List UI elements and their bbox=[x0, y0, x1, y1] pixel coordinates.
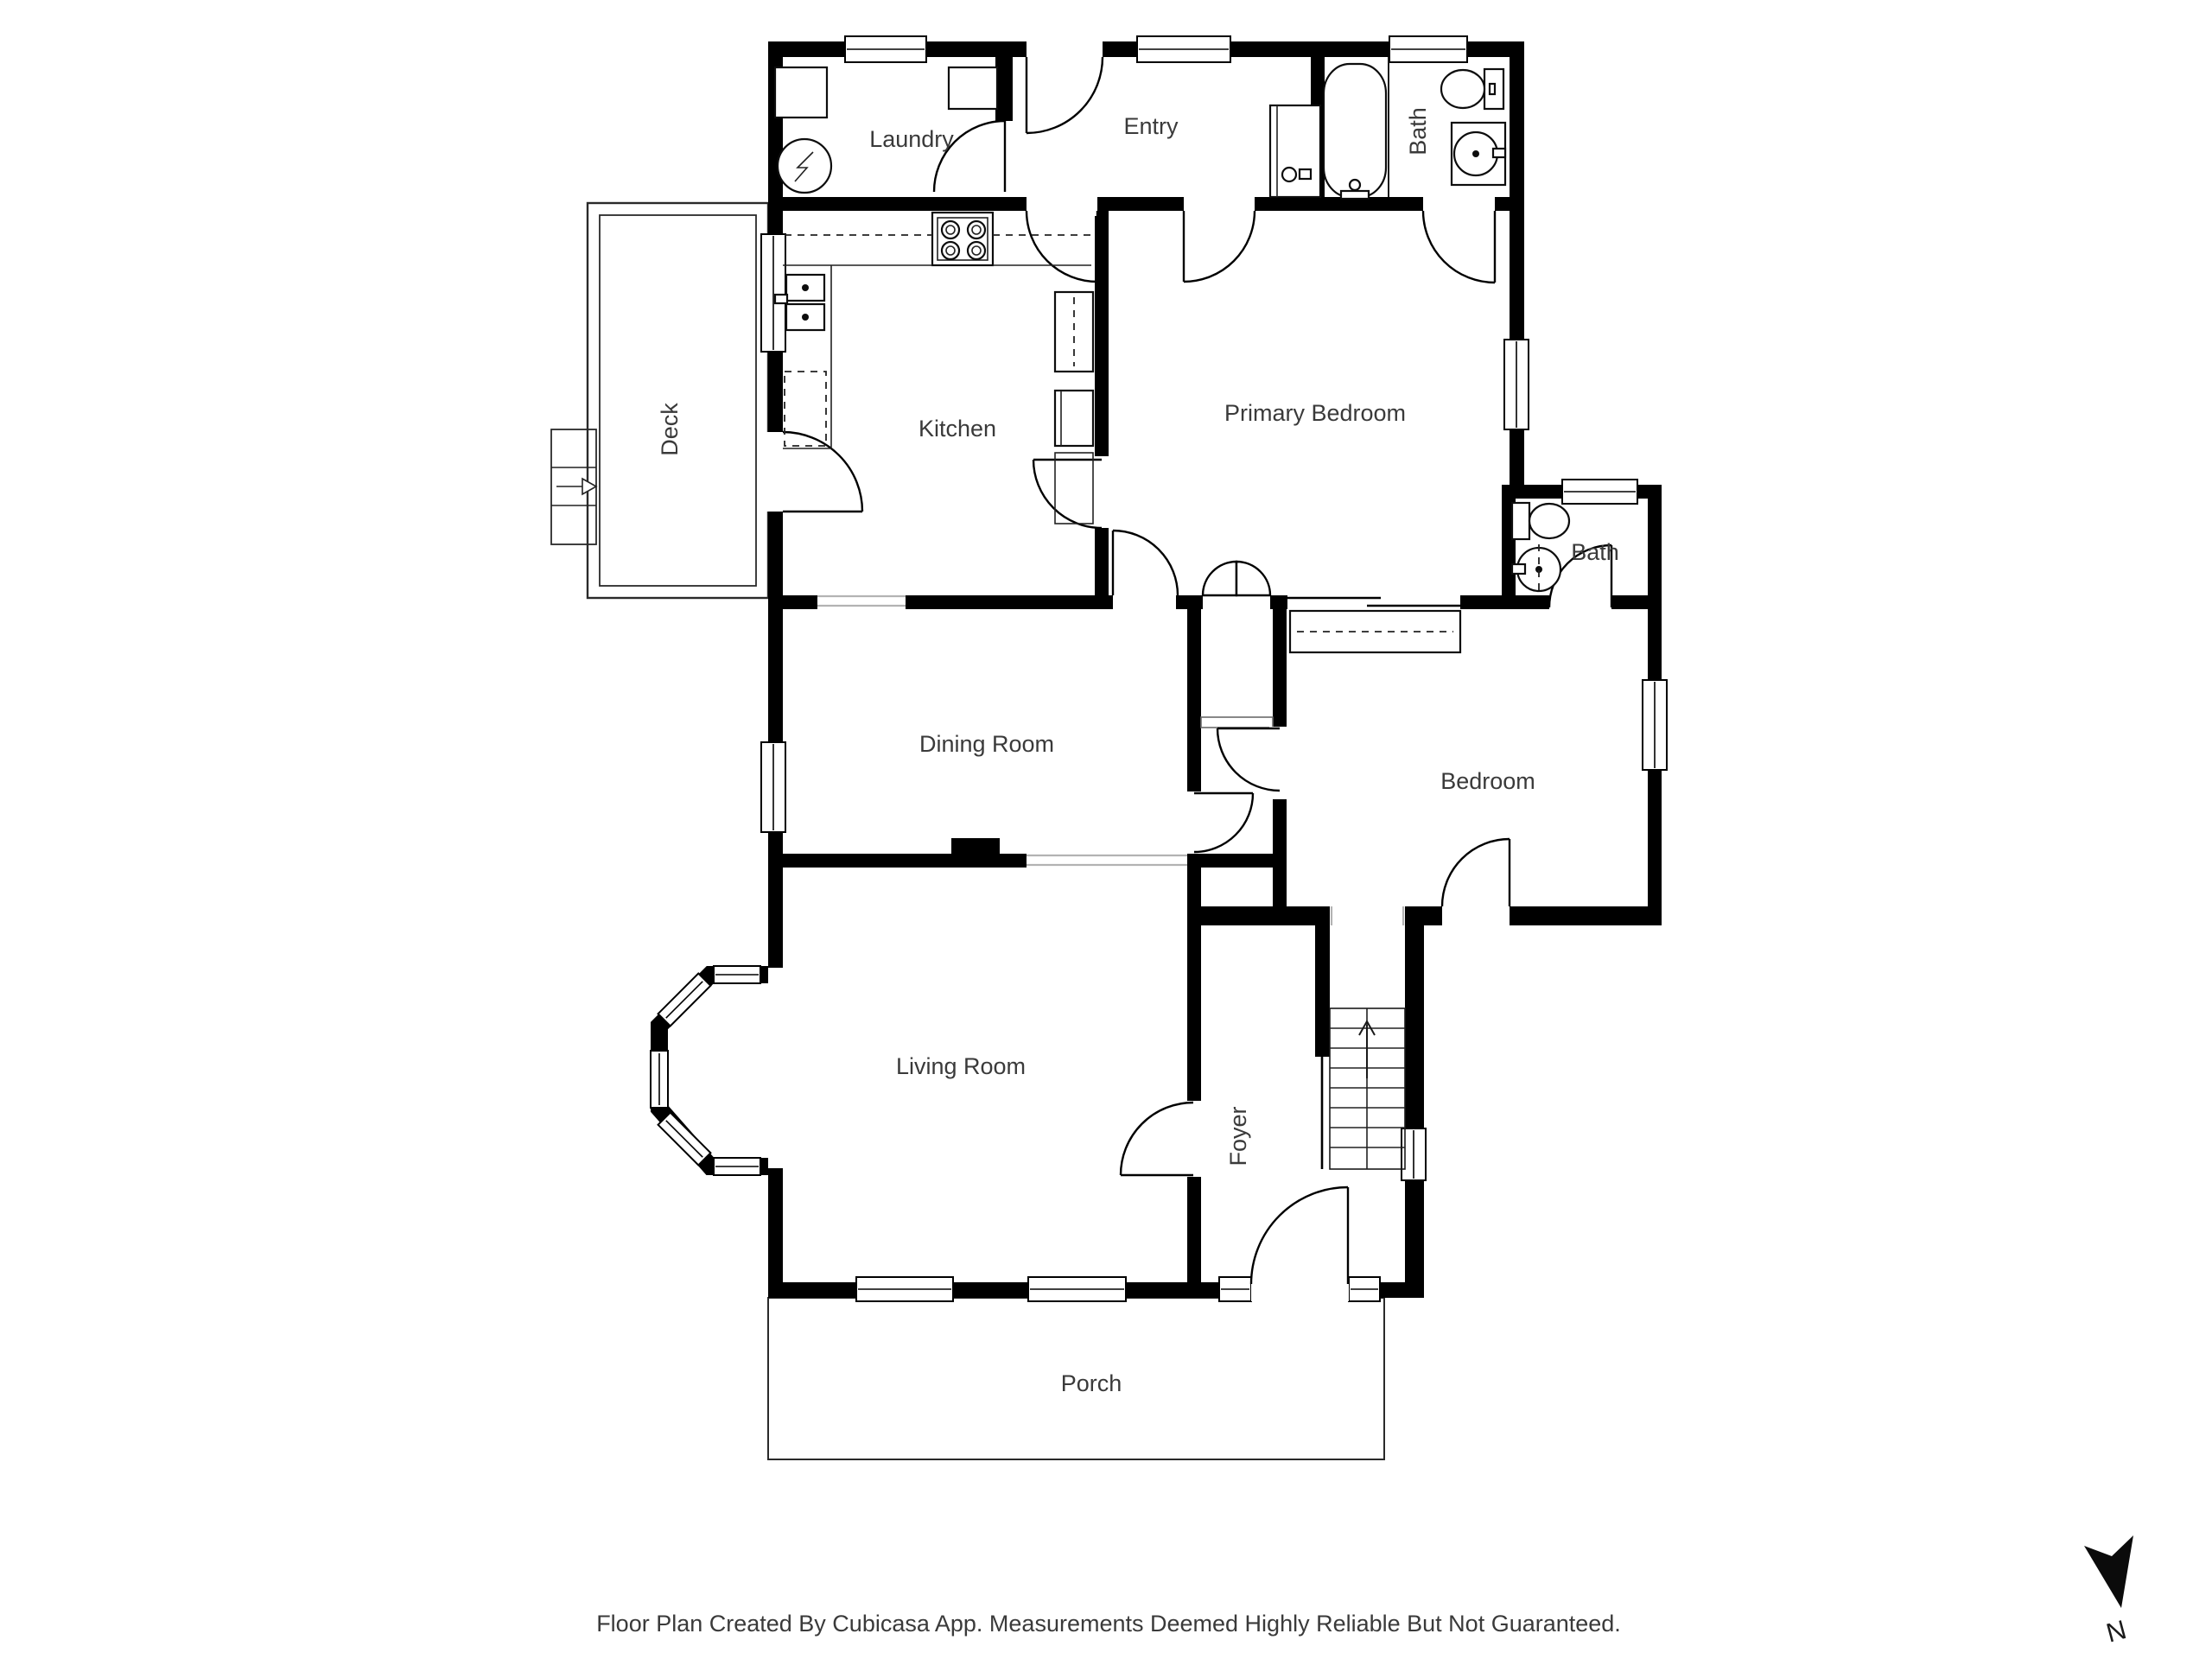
room-label-bath-mid: Bath bbox=[1571, 539, 1619, 565]
room-label-bath-top: Bath bbox=[1405, 107, 1431, 156]
bathtub-icon bbox=[1324, 64, 1386, 199]
window bbox=[658, 974, 711, 1027]
chimney bbox=[951, 838, 1000, 854]
room-label-dining: Dining Room bbox=[919, 731, 1054, 757]
window bbox=[1389, 36, 1467, 62]
window bbox=[1219, 1277, 1251, 1301]
deck-steps-icon bbox=[551, 429, 596, 544]
room-label-entry: Entry bbox=[1123, 113, 1179, 139]
door bbox=[1251, 1187, 1349, 1301]
room-label-bedroom: Bedroom bbox=[1440, 768, 1535, 794]
staircase bbox=[1322, 1008, 1405, 1169]
door bbox=[1033, 456, 1112, 528]
washer-icon bbox=[778, 139, 831, 193]
window bbox=[714, 966, 760, 983]
window bbox=[1643, 680, 1667, 770]
floor-plan-page: Laundry Entry Bath Kitchen Primary Bedro… bbox=[0, 0, 2212, 1659]
compass-label: N bbox=[2103, 1614, 2130, 1649]
door bbox=[1184, 194, 1255, 282]
room-label-porch: Porch bbox=[1061, 1370, 1122, 1396]
door bbox=[1217, 727, 1290, 799]
door bbox=[1113, 531, 1178, 613]
staircase-arrow-icon bbox=[1359, 1021, 1375, 1078]
room-label-laundry: Laundry bbox=[869, 126, 954, 152]
window bbox=[1562, 480, 1637, 504]
walls bbox=[768, 41, 1662, 1298]
door bbox=[1184, 791, 1253, 854]
room-label-deck: Deck bbox=[657, 403, 683, 456]
deck-outline bbox=[588, 203, 768, 598]
refrigerator-icon bbox=[1055, 292, 1093, 524]
toilet-icon bbox=[1512, 503, 1569, 539]
window bbox=[651, 1051, 668, 1108]
north-arrow-icon bbox=[2084, 1535, 2133, 1608]
toilet-icon bbox=[1441, 69, 1503, 109]
cabinet-icon bbox=[949, 67, 997, 109]
window bbox=[845, 36, 926, 62]
stove-icon bbox=[932, 213, 993, 265]
sliding-door bbox=[1287, 592, 1460, 613]
closet bbox=[1290, 611, 1460, 652]
room-label-foyer: Foyer bbox=[1225, 1106, 1251, 1166]
window bbox=[761, 742, 785, 832]
footer-disclaimer: Floor Plan Created By Cubicasa App. Meas… bbox=[596, 1611, 1621, 1637]
window bbox=[856, 1277, 953, 1301]
window bbox=[1137, 36, 1230, 62]
window bbox=[658, 1113, 711, 1166]
window bbox=[761, 234, 785, 352]
door bbox=[1121, 1101, 1205, 1177]
door bbox=[1027, 194, 1097, 282]
entry-closet bbox=[1270, 105, 1320, 197]
door bbox=[1027, 38, 1103, 133]
window bbox=[1504, 340, 1529, 429]
bay-window bbox=[651, 966, 768, 1175]
window bbox=[1349, 1277, 1380, 1301]
window bbox=[714, 1158, 760, 1175]
room-label-living: Living Room bbox=[896, 1053, 1026, 1079]
windows bbox=[761, 36, 1667, 1301]
sink-icon bbox=[1452, 123, 1505, 185]
floor-plan-drawing: Laundry Entry Bath Kitchen Primary Bedro… bbox=[0, 0, 2212, 1659]
window bbox=[1028, 1277, 1126, 1301]
sink-icon bbox=[1282, 168, 1296, 181]
room-label-primary-bedroom: Primary Bedroom bbox=[1224, 400, 1406, 426]
room-label-kitchen: Kitchen bbox=[918, 416, 996, 442]
bifold-door bbox=[1203, 562, 1270, 613]
compass: N bbox=[2084, 1535, 2133, 1649]
door bbox=[1423, 194, 1495, 283]
door bbox=[765, 432, 862, 512]
door bbox=[1442, 839, 1510, 927]
cabinet-icon bbox=[775, 67, 827, 118]
